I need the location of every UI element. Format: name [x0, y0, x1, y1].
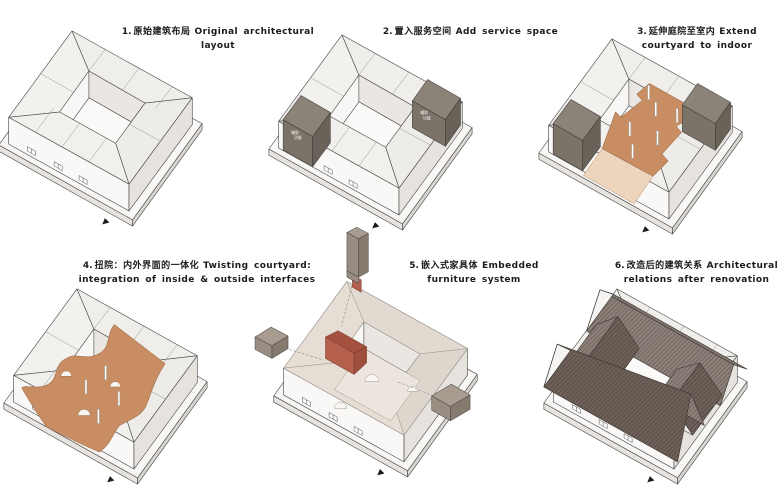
svg-text:辅助: 辅助 [291, 130, 299, 135]
figure-embedded-furniture [247, 228, 479, 478]
floating-furniture-bar-top [347, 227, 368, 283]
figure-after-renovation [517, 280, 749, 485]
architecture-process-diagram: 1.原始建筑布局Original architectural layout 2.… [0, 0, 780, 491]
figure-twisting-courtyard [0, 280, 209, 485]
svg-text:辅助: 辅助 [420, 110, 428, 115]
step-number: 6. [615, 261, 625, 271]
figure-original-layout [0, 22, 204, 227]
step-number: 4. [83, 261, 93, 271]
svg-text:功能: 功能 [423, 116, 431, 121]
figure-add-service-space: 辅助 功能 辅助 功能 [242, 26, 474, 231]
floating-furniture-box-left [255, 327, 288, 358]
step-title-zh: 改造后的建筑关系 [627, 261, 703, 271]
step-title-zh: 扭院：内外界面的一体化 [95, 261, 200, 271]
building-shell [0, 31, 202, 226]
figure-extend-courtyard [512, 30, 744, 235]
svg-text:功能: 功能 [294, 135, 302, 140]
